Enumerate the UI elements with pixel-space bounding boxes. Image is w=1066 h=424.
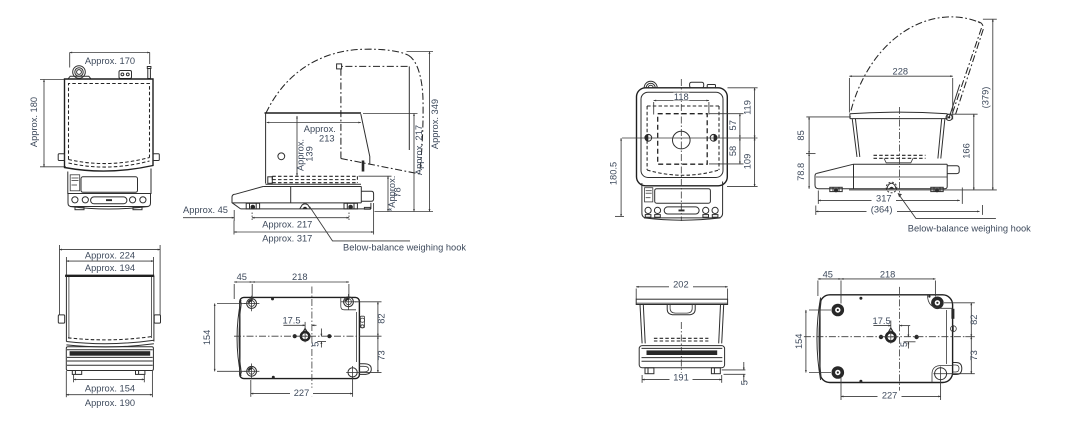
- svg-text:82: 82: [969, 315, 979, 325]
- svg-text:109: 109: [743, 154, 753, 170]
- svg-text:Below-balance weighing hook: Below-balance weighing hook: [343, 242, 466, 252]
- svg-text:154: 154: [202, 330, 212, 346]
- svg-text:Approx. 217: Approx. 217: [262, 220, 312, 230]
- svg-text:5: 5: [311, 342, 321, 347]
- svg-text:73: 73: [969, 350, 979, 360]
- svg-text:45: 45: [823, 269, 833, 279]
- svg-text:Below-balance weighing hook: Below-balance weighing hook: [908, 224, 1031, 234]
- svg-text:166: 166: [961, 143, 971, 159]
- svg-text:Approx. 180: Approx. 180: [29, 97, 39, 147]
- svg-text:227: 227: [294, 388, 310, 398]
- svg-text:85: 85: [796, 130, 806, 140]
- svg-text:Approx. 217: Approx. 217: [414, 125, 424, 175]
- svg-text:58: 58: [728, 146, 738, 156]
- svg-text:Approx. 224: Approx. 224: [85, 251, 135, 261]
- svg-text:17.5: 17.5: [282, 315, 300, 325]
- svg-text:Approx. 170: Approx. 170: [85, 56, 135, 66]
- svg-text:228: 228: [893, 66, 909, 76]
- svg-text:Approx. 194: Approx. 194: [85, 263, 135, 273]
- svg-text:73: 73: [376, 350, 386, 360]
- svg-text:118: 118: [674, 92, 689, 102]
- svg-text:227: 227: [882, 391, 898, 401]
- svg-text:78.8: 78.8: [796, 163, 806, 181]
- svg-text:(364): (364): [871, 204, 893, 214]
- svg-text:45: 45: [237, 272, 247, 282]
- svg-text:202: 202: [673, 280, 689, 290]
- svg-text:Approx. 154: Approx. 154: [85, 384, 135, 394]
- svg-text:78: 78: [393, 187, 403, 197]
- svg-text:(379): (379): [981, 87, 991, 109]
- svg-text:Approx. 317: Approx. 317: [262, 233, 312, 243]
- svg-text:191: 191: [673, 373, 689, 383]
- svg-text:154: 154: [794, 334, 804, 350]
- svg-text:Approx. 190: Approx. 190: [85, 398, 135, 408]
- svg-text:218: 218: [880, 269, 896, 279]
- svg-text:82: 82: [376, 313, 386, 323]
- svg-text:139: 139: [305, 146, 315, 162]
- svg-text:5: 5: [899, 342, 909, 347]
- svg-text:17.5: 17.5: [873, 316, 891, 326]
- svg-text:Approx. 349: Approx. 349: [430, 99, 440, 149]
- svg-text:Approx.: Approx.: [304, 124, 336, 134]
- svg-text:317: 317: [876, 193, 892, 203]
- svg-text:213: 213: [319, 134, 335, 144]
- svg-text:119: 119: [743, 100, 753, 115]
- svg-text:Approx. 45: Approx. 45: [183, 205, 228, 215]
- svg-text:5: 5: [739, 380, 749, 385]
- svg-text:180.5: 180.5: [609, 162, 619, 185]
- svg-text:57: 57: [728, 120, 738, 130]
- svg-text:218: 218: [292, 272, 308, 282]
